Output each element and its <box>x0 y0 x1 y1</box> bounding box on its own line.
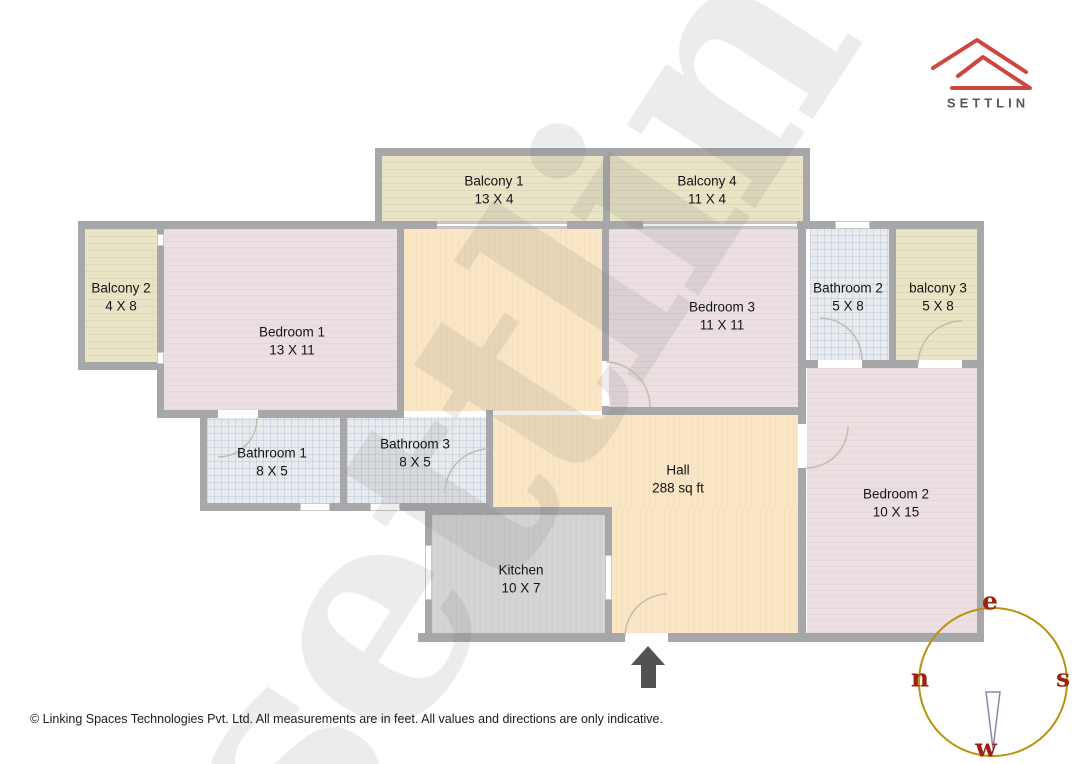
room-dims: 288 sq ft <box>652 479 704 497</box>
room-name: balcony 3 <box>909 279 967 297</box>
room-dims: 10 X 7 <box>498 579 543 597</box>
room-name: Bathroom 2 <box>813 279 883 297</box>
footer-disclaimer: © Linking Spaces Technologies Pvt. Ltd. … <box>30 712 663 726</box>
label-balcony-1: Balcony 1 13 X 4 <box>464 172 523 207</box>
door-arc-balcony-3 <box>918 321 962 365</box>
room-dims: 8 X 5 <box>380 453 450 471</box>
door-arc-bedroom-3 <box>606 362 650 407</box>
settlin-logo-icon <box>925 30 1040 94</box>
door-arc-bathroom-3 <box>445 449 489 493</box>
room-name: Balcony 1 <box>464 172 523 190</box>
room-dims: 10 X 15 <box>863 503 929 521</box>
compass-north: n <box>911 664 929 693</box>
label-balcony-4: Balcony 4 11 X 4 <box>677 172 736 207</box>
logo-outer-roof <box>933 40 1026 72</box>
room-dims: 13 X 4 <box>464 190 523 208</box>
room-name: Bedroom 3 <box>689 298 755 316</box>
label-bedroom-1: Bedroom 1 13 X 11 <box>259 323 325 358</box>
room-name: Kitchen <box>498 561 543 579</box>
label-kitchen: Kitchen 10 X 7 <box>498 561 543 596</box>
compass-west: w <box>975 734 997 763</box>
label-bathroom-2: Bathroom 2 5 X 8 <box>813 279 883 314</box>
room-name: Hall <box>652 461 704 479</box>
label-bathroom-1: Bathroom 1 8 X 5 <box>237 444 307 479</box>
room-name: Bathroom 3 <box>380 435 450 453</box>
label-balcony-2: Balcony 2 4 X 8 <box>91 279 150 314</box>
brand-name: SETTLIN <box>947 96 1029 111</box>
room-dims: 5 X 8 <box>813 297 883 315</box>
label-bedroom-2: Bedroom 2 10 X 15 <box>863 485 929 520</box>
room-name: Bedroom 2 <box>863 485 929 503</box>
label-bathroom-3: Bathroom 3 8 X 5 <box>380 435 450 470</box>
room-name: Balcony 2 <box>91 279 150 297</box>
door-arc-bathroom-2 <box>820 318 862 360</box>
room-dims: 11 X 4 <box>677 190 736 208</box>
room-dims: 8 X 5 <box>237 462 307 480</box>
room-name: Bedroom 1 <box>259 323 325 341</box>
room-dims: 5 X 8 <box>909 297 967 315</box>
room-name: Bathroom 1 <box>237 444 307 462</box>
entrance-arrow-icon <box>628 644 668 690</box>
room-dims: 13 X 11 <box>259 341 325 359</box>
door-arc-bedroom-2 <box>806 426 848 468</box>
compass-south: s <box>1056 664 1070 693</box>
room-dims: 11 X 11 <box>689 316 755 334</box>
label-hall: Hall 288 sq ft <box>652 461 704 496</box>
compass-east: e <box>982 587 998 616</box>
room-dims: 4 X 8 <box>91 297 150 315</box>
label-bedroom-3: Bedroom 3 11 X 11 <box>689 298 755 333</box>
room-name: Balcony 4 <box>677 172 736 190</box>
logo-inner-roof <box>952 57 1030 88</box>
door-arc-entrance <box>625 594 667 637</box>
label-balcony-3: balcony 3 5 X 8 <box>909 279 967 314</box>
floorplan-canvas: settlin <box>0 0 1080 764</box>
